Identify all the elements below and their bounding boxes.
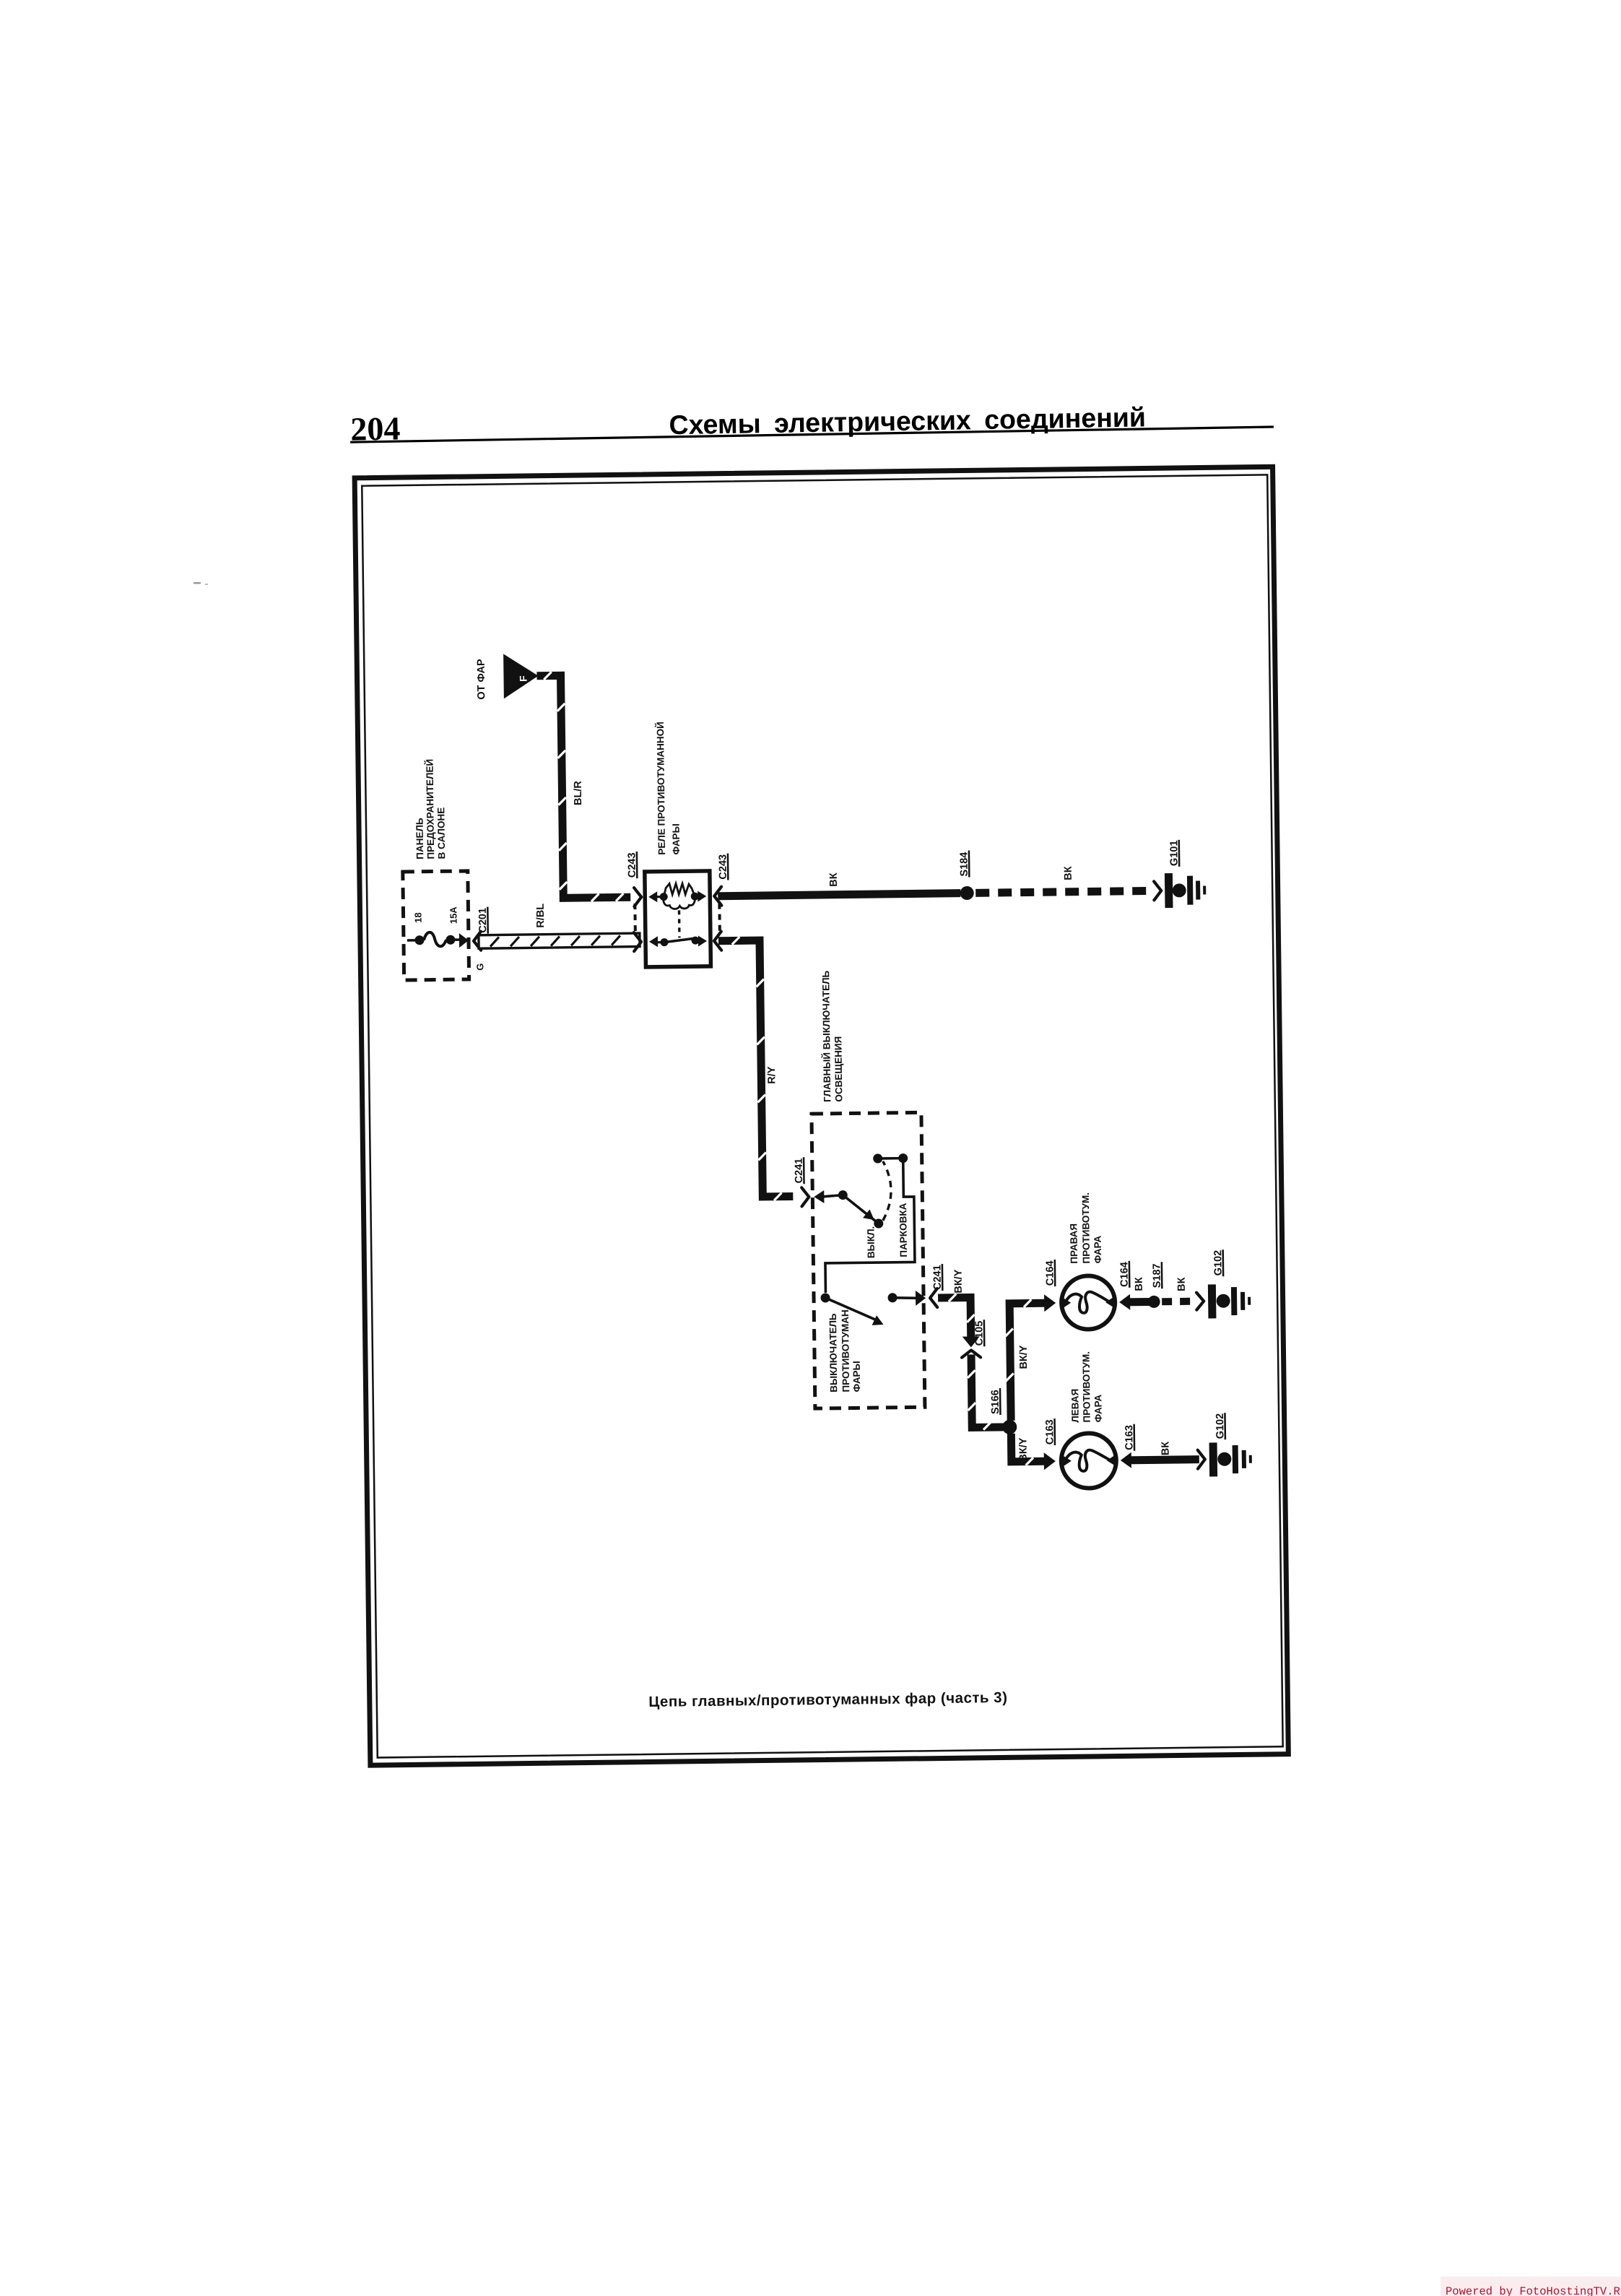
svg-text:ОТ ФАР: ОТ ФАР bbox=[476, 659, 488, 700]
svg-text:ФАРЫ: ФАРЫ bbox=[671, 823, 682, 854]
svg-text:ФАРА: ФАРА bbox=[1092, 1394, 1103, 1422]
svg-text:ВК: ВК bbox=[1063, 866, 1074, 880]
svg-text:ОСВЕЩЕНИЯ: ОСВЕЩЕНИЯ bbox=[833, 1036, 844, 1102]
svg-text:ПРОТИВОТУМАН.: ПРОТИВОТУМАН. bbox=[840, 1307, 851, 1392]
svg-text:F: F bbox=[517, 675, 529, 682]
svg-text:ПРАВАЯ: ПРАВАЯ bbox=[1068, 1223, 1079, 1264]
svg-text:ВК/Y: ВК/Y bbox=[1017, 1437, 1029, 1462]
svg-text:ФАРЫ: ФАРЫ bbox=[851, 1361, 863, 1392]
svg-text:R/Y: R/Y bbox=[766, 1066, 778, 1084]
svg-text:ПРЕДОХРАНИТЕЛЕЙ: ПРЕДОХРАНИТЕЛЕЙ bbox=[424, 759, 436, 859]
svg-text:ФАРА: ФАРА bbox=[1092, 1235, 1103, 1263]
svg-text:BL/R: BL/R bbox=[573, 781, 584, 806]
svg-text:ВК: ВК bbox=[1176, 1277, 1188, 1291]
svg-text:18: 18 bbox=[412, 912, 423, 923]
svg-text:15A: 15A bbox=[448, 906, 459, 924]
svg-text:ВК/Y: ВК/Y bbox=[952, 1269, 964, 1294]
svg-text:R/BL: R/BL bbox=[535, 904, 547, 928]
svg-text:РЕЛЕ ПРОТИВОТУМАННОЙ: РЕЛЕ ПРОТИВОТУМАННОЙ bbox=[655, 722, 667, 855]
svg-text:ГЛАВНЫЙ ВЫКЛЮЧАТЕЛЬ: ГЛАВНЫЙ ВЫКЛЮЧАТЕЛЬ bbox=[820, 970, 833, 1102]
svg-text:Powered by FotoHostingTV.RU: Powered by FotoHostingTV.RU bbox=[1446, 2285, 1621, 2296]
svg-text:ВК: ВК bbox=[1160, 1442, 1171, 1456]
svg-text:ПАРКОВКА: ПАРКОВКА bbox=[898, 1203, 909, 1257]
svg-text:ПРОТИВОТУМ.: ПРОТИВОТУМ. bbox=[1081, 1351, 1092, 1423]
svg-text:ВЫКЛЮЧАТЕЛЬ: ВЫКЛЮЧАТЕЛЬ bbox=[827, 1313, 839, 1392]
svg-text:G: G bbox=[474, 963, 485, 971]
svg-text:ВЫКЛ.: ВЫКЛ. bbox=[865, 1226, 877, 1259]
svg-text:ВК: ВК bbox=[828, 872, 840, 887]
svg-text:ВК/Y: ВК/Y bbox=[1018, 1345, 1030, 1369]
svg-text:ЛЕВАЯ: ЛЕВАЯ bbox=[1069, 1389, 1081, 1423]
svg-text:В САЛОНЕ: В САЛОНЕ bbox=[435, 807, 447, 859]
svg-text:ВК: ВК bbox=[1134, 1277, 1145, 1291]
svg-text:ПРОТИВОТУМ.: ПРОТИВОТУМ. bbox=[1080, 1192, 1092, 1264]
svg-text:ПАНЕЛЬ: ПАНЕЛЬ bbox=[414, 818, 425, 859]
